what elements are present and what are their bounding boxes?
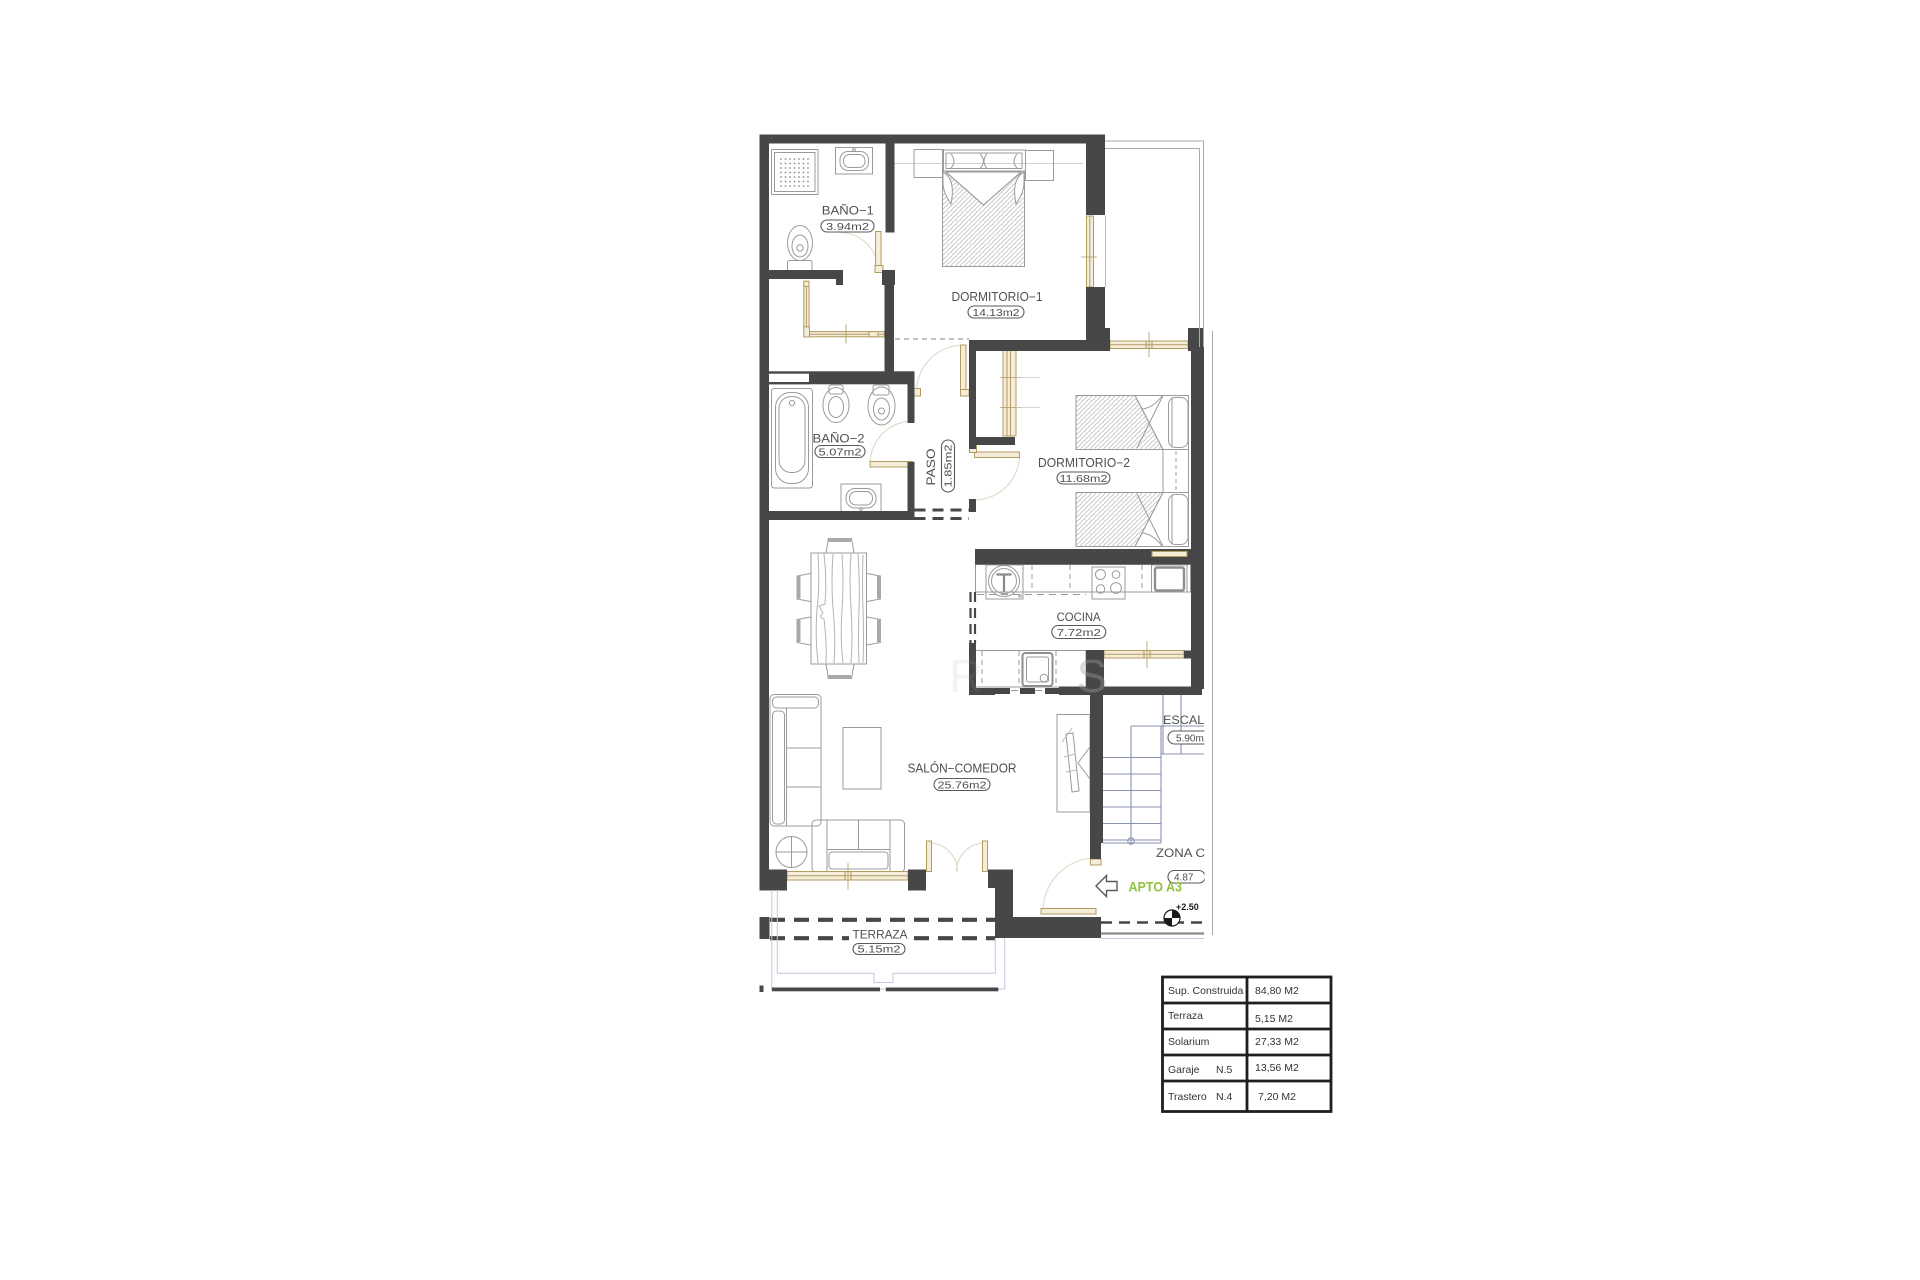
svg-text:R: R — [949, 650, 982, 702]
svg-text:1.85m2: 1.85m2 — [944, 444, 955, 488]
svg-text:TERRAZA: TERRAZA — [853, 928, 908, 942]
svg-text:14.13m2: 14.13m2 — [973, 308, 1021, 319]
svg-text:84,80 M2: 84,80 M2 — [1255, 985, 1299, 997]
svg-text:13,56 M2: 13,56 M2 — [1255, 1062, 1299, 1074]
svg-text:5.15m2: 5.15m2 — [858, 945, 902, 956]
svg-text:PASO: PASO — [926, 448, 938, 485]
svg-text:5,15 M2: 5,15 M2 — [1255, 1013, 1293, 1025]
svg-text:Sup. Construida: Sup. Construida — [1168, 985, 1243, 997]
svg-text:5.90m2: 5.90m2 — [1176, 734, 1210, 745]
svg-text:DORMITORIO−2: DORMITORIO−2 — [1038, 456, 1130, 470]
svg-text:+2.50: +2.50 — [1176, 902, 1199, 912]
svg-text:Trastero: Trastero — [1168, 1091, 1207, 1103]
svg-text:ESCALERA: ESCALERA — [1163, 713, 1230, 727]
svg-text:11.68m2: 11.68m2 — [1060, 474, 1109, 485]
svg-text:ZONA C: ZONA C — [1156, 846, 1205, 860]
svg-text:3.94m2: 3.94m2 — [826, 222, 870, 233]
svg-text:27,33 M2: 27,33 M2 — [1255, 1036, 1299, 1048]
svg-text:S: S — [1077, 650, 1108, 702]
svg-text:COCINA: COCINA — [1057, 610, 1101, 624]
svg-text:N.5: N.5 — [1216, 1064, 1233, 1076]
svg-text:BAÑO−2: BAÑO−2 — [813, 432, 865, 446]
svg-text:N.4: N.4 — [1216, 1091, 1233, 1103]
svg-text:Terraza: Terraza — [1168, 1010, 1203, 1022]
svg-text:7,20 M2: 7,20 M2 — [1258, 1091, 1296, 1103]
svg-text:7.72m2: 7.72m2 — [1057, 628, 1102, 639]
svg-text:Garaje: Garaje — [1168, 1064, 1200, 1076]
svg-text:DORMITORIO−1: DORMITORIO−1 — [952, 290, 1043, 304]
svg-text:APTO A3: APTO A3 — [1129, 879, 1183, 895]
svg-text:Solarium: Solarium — [1168, 1036, 1210, 1048]
svg-text:25.76m2: 25.76m2 — [938, 781, 988, 792]
svg-text:SALÓN−COMEDOR: SALÓN−COMEDOR — [908, 761, 1017, 776]
svg-text:BAÑO−1: BAÑO−1 — [822, 204, 874, 218]
svg-text:5.07m2: 5.07m2 — [819, 448, 863, 459]
